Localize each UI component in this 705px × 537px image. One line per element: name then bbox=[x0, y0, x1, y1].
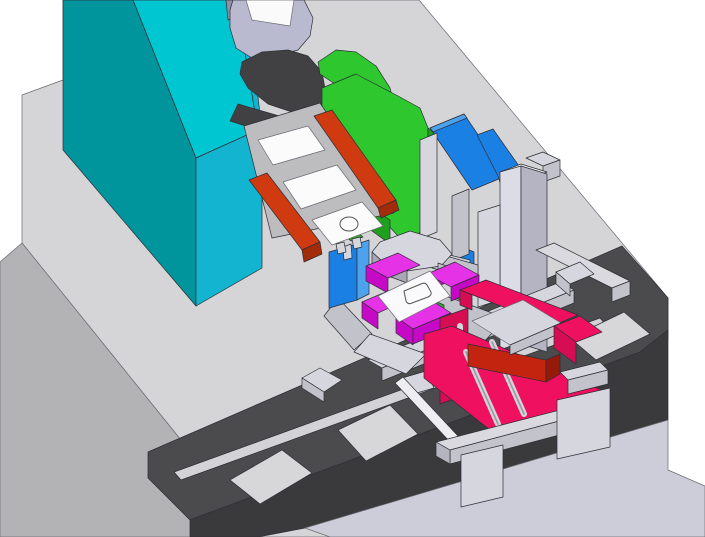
assembly-render bbox=[0, 0, 705, 537]
bracket-upright-right bbox=[452, 189, 469, 261]
cad-viewport bbox=[0, 0, 705, 537]
blue-block-front bbox=[329, 244, 357, 308]
pickup-tab-left bbox=[336, 242, 346, 254]
pickup-tab-right bbox=[352, 237, 362, 249]
output-plate-center bbox=[461, 445, 503, 507]
bracket-upright-left bbox=[420, 133, 437, 239]
output-plate-right bbox=[557, 388, 610, 459]
